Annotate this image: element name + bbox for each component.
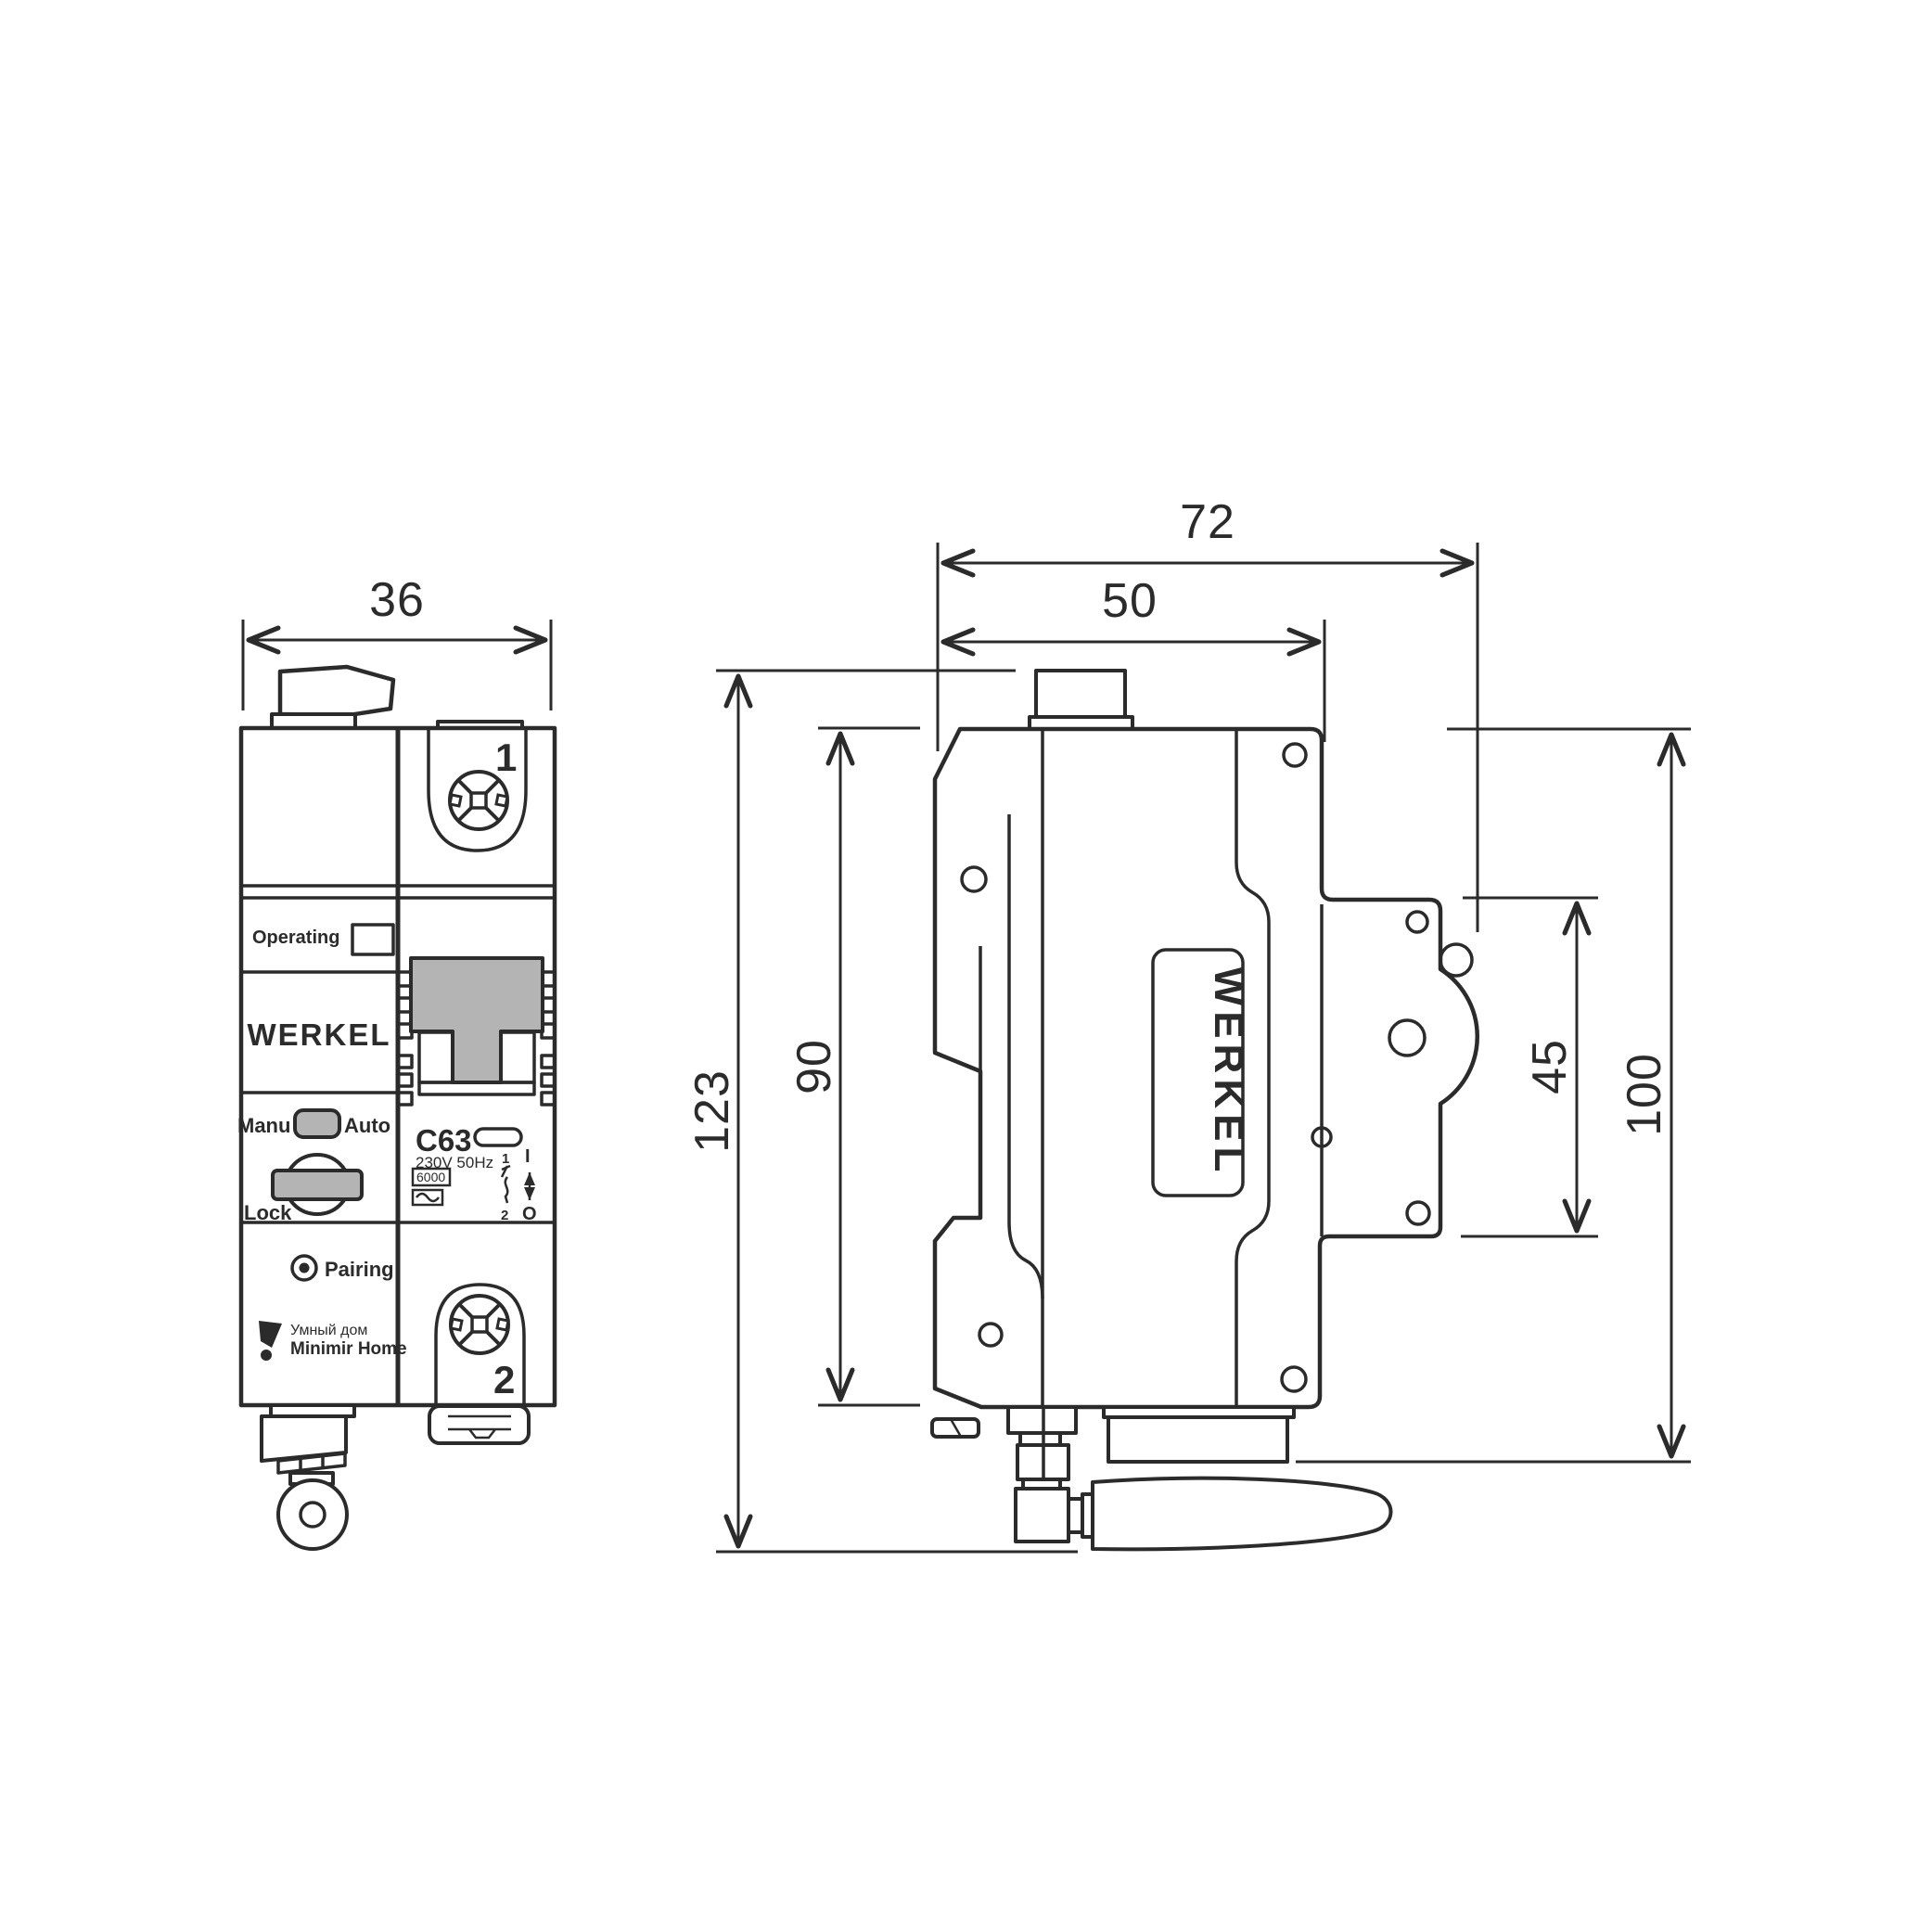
terminal-2-number: 2 [493, 1358, 515, 1401]
dim-body-height: 90 [787, 728, 920, 1405]
switch-off-label: O [522, 1204, 537, 1224]
switch-on-label: I [525, 1146, 531, 1167]
brand-side: WERKEL [1206, 967, 1251, 1178]
manu-label: Manu [237, 1114, 290, 1137]
breaker-mechanism [398, 958, 555, 1105]
terminal-cover [1108, 1417, 1287, 1462]
front-view: Operating WERKEL Manu Auto Lock Pairing … [237, 667, 555, 1549]
terminal-2-screw[interactable] [451, 1296, 508, 1353]
auto-label: Auto [344, 1114, 390, 1137]
rocker-switch-side [1036, 671, 1125, 719]
dim-terminal-block-height: 45 [1461, 898, 1598, 1236]
lock-knob-grip[interactable] [273, 1171, 362, 1199]
dim-value-90: 90 [787, 1039, 841, 1094]
antenna-cone [1093, 1478, 1391, 1550]
breaking-capacity: 6000 [416, 1170, 445, 1184]
dim-value-100: 100 [1618, 1053, 1671, 1136]
rivet-icon [1440, 944, 1472, 976]
din-latch-side [932, 1419, 979, 1437]
rocker-switch [280, 667, 393, 715]
dim-value-45: 45 [1523, 1039, 1577, 1094]
terminal-1-number: 1 [495, 736, 517, 779]
minimir-home-text: Minimir Home [290, 1339, 407, 1359]
diagram-pole-top: 1 [502, 1151, 509, 1167]
diagram-pole-bottom: 2 [501, 1208, 508, 1223]
rating-label: C63 [416, 1123, 472, 1158]
brand-front: WERKEL [248, 1017, 391, 1052]
technical-drawing-page: Operating WERKEL Manu Auto Lock Pairing … [0, 0, 1932, 1932]
lock-label: Lock [244, 1201, 292, 1224]
operating-label: Operating [252, 928, 339, 948]
smart-home-text: Умный дом [290, 1323, 367, 1338]
pairing-label: Pairing [325, 1258, 394, 1281]
dim-value-72: 72 [1180, 495, 1235, 549]
din-clip-front [429, 1406, 529, 1443]
dim-value-50: 50 [1102, 574, 1158, 628]
dim-value-36: 36 [369, 573, 425, 627]
antenna-end [278, 1480, 347, 1549]
breaker-dimension-drawing: Operating WERKEL Manu Auto Lock Pairing … [0, 0, 1932, 1932]
manu-auto-slider[interactable] [295, 1110, 339, 1137]
side-view: WERKEL [932, 671, 1478, 1549]
antenna-front [262, 1405, 354, 1549]
dim-value-123: 123 [685, 1069, 739, 1153]
terminal-1-screw[interactable] [450, 772, 507, 829]
